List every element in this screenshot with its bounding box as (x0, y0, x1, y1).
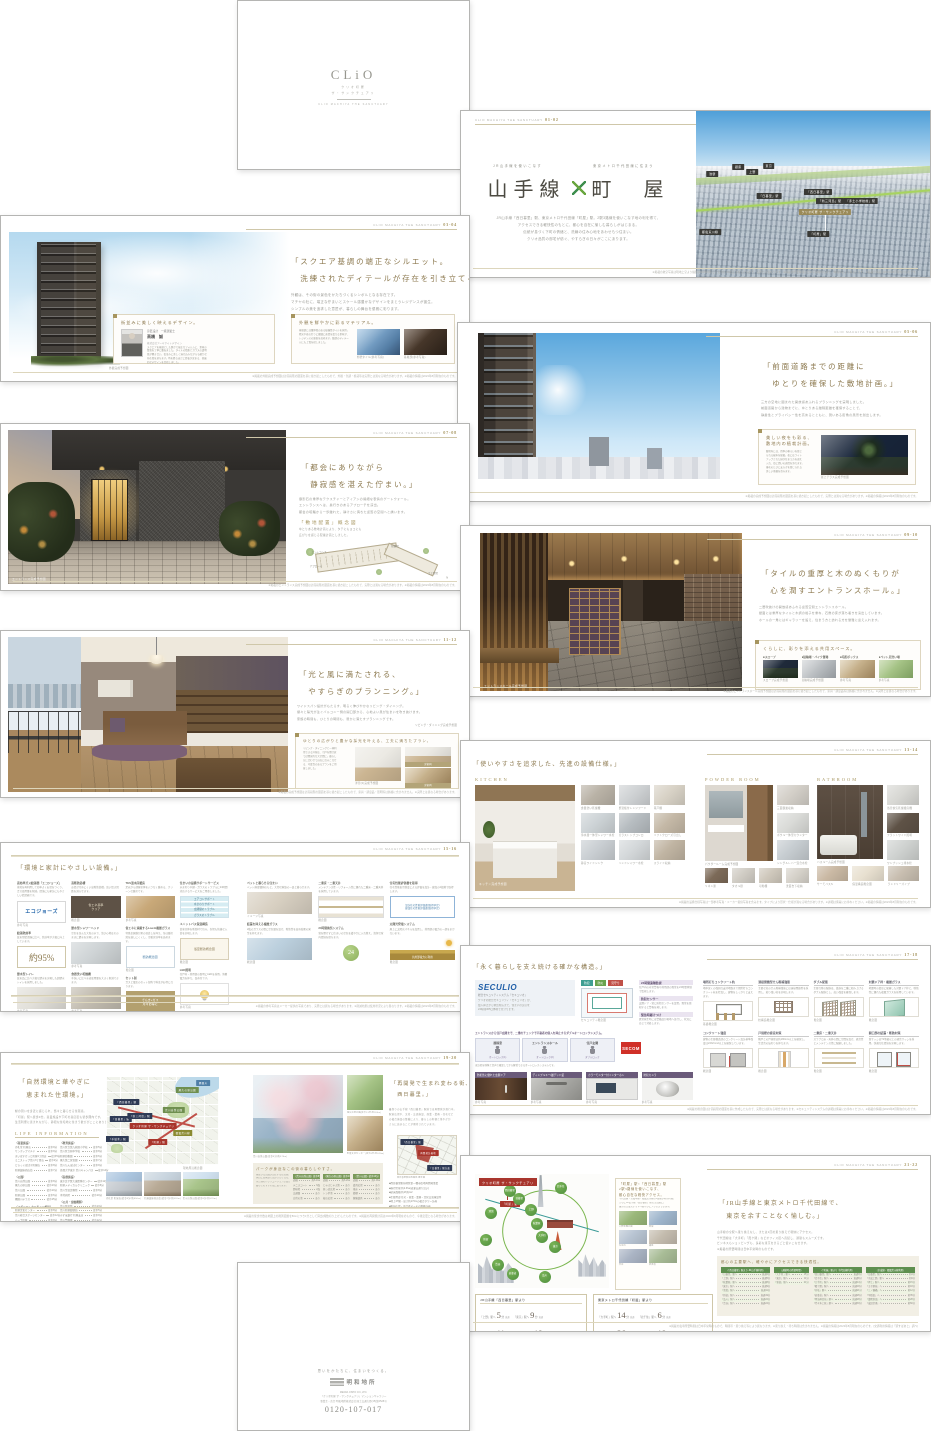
leader (789, 1278, 802, 1279)
base-caption: 基壇部(参考写真) (404, 355, 447, 359)
feature-visual: 浴室断熱概念図 (180, 938, 229, 960)
station-badge: 日暮里 (513, 1193, 525, 1205)
group-rows: 東京女子医大東医療センター徒歩11分町屋メディカルクリニック徒歩6分荒川生協診療… (60, 1180, 102, 1199)
security-column: 防犯センサー 玄関ドア・窓に防犯センサーを設置。異常を感知すると警報を発します。 (639, 996, 693, 1010)
station-badge: 池袋 (485, 1207, 497, 1219)
license-line: 事業主・売主:明和地所株式会社 国土交通大臣(15)第2528号 (238, 1400, 469, 1405)
diagram-caption: 概念図 (869, 1018, 919, 1022)
header-brand-text: CLIO MACHIYA THE SANCTUARY (475, 118, 543, 122)
timetable-3: 〈「町屋」駅より 千代田線利用〉 「西日暮里」駅へ直通3分「北千住」駅へ直通6分… (813, 1267, 862, 1307)
granite-wall (139, 461, 225, 544)
plan-text: リビング・ダイニングと一体利用できる洋室は、引戸を開け放てば開放的な大空間に。暮… (303, 747, 351, 788)
structure-diagram (758, 1048, 808, 1068)
structure-item-title: 戸境壁の遮音対策 (758, 1031, 808, 1037)
feature-title: 24時間換気システム (318, 926, 383, 930)
feature-title: ペットと暮らせる住まい (247, 881, 312, 885)
structure-item: 対震ドア枠・複層ガラス 地震時の変形に配慮した対震ドア枠と、断熱性に優れた複層ガ… (869, 980, 919, 1026)
page-number: 17-18 (904, 952, 918, 957)
aerial-sky (696, 111, 931, 166)
equipment-thumb: 食器洗い乾燥機 (581, 785, 615, 810)
eco-spread: CLIO MACHIYA THE SANCTUARY15-16 「環境と家計にや… (0, 842, 470, 1012)
company-name: 明和地所 (346, 1378, 376, 1386)
info-row: 木村病院徒歩10分 (60, 1194, 102, 1199)
cover-subtitle-2: ザ・サンクチュアリ (238, 91, 469, 97)
thumb-photo (581, 813, 615, 833)
equipment-thumb: フラットワイド照明 (887, 813, 919, 838)
aerial-photo: 銀座東京上野池袋「日暮里」駅「西日暮里」駅「新三河島」駅「赤土小学校前」駅クリオ… (696, 111, 931, 277)
security-tag: 防災 (595, 980, 607, 986)
step-subtitle: オートロック(2) (525, 1055, 564, 1059)
entrance-paragraph: 御影石の重厚なテクスチャーとアイアンの繊細な表情のゲートウォール。エントランスへ… (299, 496, 411, 515)
info-group: 〈商業施設〉 赤札堂 町屋店徒歩9分サンポップマチヤ徒歩9分まいばすけっと町屋1… (15, 1141, 57, 1173)
project-badge: クリオ町屋 ザ・サンクチュアリ (479, 1178, 537, 1186)
midbox-line: 東京の主要スポットへ軽やかにアクセスできます。 (619, 1206, 677, 1210)
leader (739, 1282, 761, 1283)
thumb-caption: 保温構造概念図 (852, 882, 883, 886)
structure-item-title: 場所打ちコンクリート杭 (703, 980, 753, 986)
entrance-spread: エントランス完成予想図 CLIO MACHIYA THE SANCTUARY07… (0, 423, 470, 591)
access-mid-box: 「町屋」駅×「西日暮里」駅 2駅3路線を使いこなす、 都心自在な軽快アクセス。 … (615, 1178, 681, 1290)
architect-org: 株式会社アーキサイトデザイン (147, 341, 207, 345)
access-time: 「東京」駅へ9分直通 (514, 1310, 544, 1320)
leader (886, 1278, 908, 1279)
security-items: 防犯性に優れた玄関ドア 参考写真 ディンプルキー/鎌デッド錠 参考写真 カラーモ… (475, 1072, 693, 1104)
headline-line2: 西日暮里。」 (391, 1090, 470, 1101)
thumb-caption: フラットワイド照明 (887, 833, 919, 837)
feature-text: お湯が冷めにくい高断熱浴槽。追い焚き回数を減らせます。 (71, 886, 120, 894)
page-header: CLIO MACHIYA THE SANCTUARY05-06 (706, 329, 918, 337)
title-yamanote: 山手線 (488, 173, 566, 202)
feature-caption: 概念図 (318, 918, 383, 922)
leader (883, 1286, 906, 1287)
paragraph-line: 家族の時間も、ひとりの時間も、豊かに満たすプランニングです。 (297, 716, 422, 722)
entrance-photo: エントランス完成予想図 (8, 430, 286, 584)
equipment-thumb: スライド収納 (654, 840, 685, 865)
column-title: 防犯センサー (639, 996, 693, 1001)
table-rows: 「大手町」駅へ15分「東京」駅へ11分「新宿」駅へ21分 (774, 1273, 808, 1286)
station-badge: 東京 (549, 1241, 561, 1253)
map-label-chip: 隅田川 (196, 1080, 210, 1086)
eco-feature: 節水型シャワーヘッド 空気を含んだ大粒の水で、浴び心地はそのままに節水を実現しま… (71, 926, 120, 967)
planting-left (8, 482, 75, 562)
page-header: CLIO MACHIYA THE SANCTUARY07-08 (246, 430, 457, 438)
structure-item-text: 主要な柱のせん断補強筋には溶接閉鎖型を採用し、粘り強い柱を実現します。 (758, 987, 808, 995)
access-time: 「表参道」駅へ26分直通 (598, 1328, 634, 1333)
station: 「新宿」駅へ (774, 1281, 788, 1285)
feature-value: 約95% (29, 951, 55, 964)
bathroom-label: BATHROOM (817, 777, 858, 782)
thumb-photo (786, 868, 809, 883)
diagram-caption: 概念図 (814, 1018, 864, 1022)
structure-item-text: 地中深くの強固な支持地盤まで場所打ちコンクリート杭を打設し、建物をしっかりと支え… (703, 987, 753, 999)
place-distance: 徒歩9分 (48, 1219, 57, 1222)
info-row: 町屋銀座商店街徒歩7分 (15, 1169, 57, 1174)
feature-value: 設計住宅性能評価書(取得予定) 建設住宅性能評価書(取得予定) (405, 904, 439, 912)
thumb-photo (581, 785, 615, 805)
plan-label: N (446, 576, 448, 579)
header-brand-text: CLIO MACHIYA THE SANCTUARY (373, 431, 441, 435)
city-photo (649, 1249, 677, 1263)
wall-shelves (176, 690, 288, 733)
bottom-rule (11, 995, 459, 997)
structure-item-text: 隣戸との戸境壁は約180mm以上を確保し、生活音の伝わりを抑えます。 (758, 1038, 808, 1046)
table-rows: 「西日暮里」駅へ直通3分「北千住」駅へ直通6分「大手町」駅へ直通14分「霞ケ関」… (813, 1273, 862, 1307)
group-title: 〈教育施設〉 (60, 1141, 102, 1145)
siteplan-note: ゆとりある敷地計画により、タテにもヨコにも広がりを感じる配棟計画としました。 (299, 527, 362, 538)
feature-text: 窓を開けずに住まいの空気を緩やかに入れ替え、清潔な室内環境を保ちます。 (318, 932, 383, 940)
leader (883, 1299, 906, 1300)
access-box-title: 東京メトロ千代田線「町屋」駅より (598, 1298, 708, 1304)
feature-title: ユニットバス保温構造 (180, 922, 229, 926)
plan-green-3 (423, 548, 429, 554)
concept-spread: CLIO MACHIYA THE SANCTUARY01-02 JR山手線を使い… (460, 110, 931, 278)
security-tags: 防犯防災見守り (581, 980, 633, 986)
leader (42, 1165, 47, 1166)
security-item-caption: 参考写真 (531, 1100, 583, 1104)
structure-item-text: 地震時の変形に配慮した対震ドア枠と、断熱性に優れた複層ガラスを採用しています。 (869, 987, 919, 995)
planting-right (219, 501, 280, 556)
feature-caption: 概念図 (126, 968, 175, 972)
thumb-caption: 三面鏡裏収納 (777, 806, 809, 810)
leader (74, 1220, 90, 1221)
page-header: CLIO MACHIYA THE SANCTUARY17-18 (707, 952, 918, 960)
security-column: 24時間遠隔監視 住戸内の非常警報や共用部の異常を24時間体制で監視します。 (639, 980, 693, 994)
headline-line1: 「都会にありながら (301, 460, 418, 477)
equipment-title: 「使いやすさを追求した、先進の設備仕様。」 (473, 759, 621, 772)
mini-map-caption: 西日暮里駅前再開発 概念図 (397, 1176, 425, 1179)
leader (48, 1156, 50, 1157)
headline-line1: 「タイルの重厚と木のぬくもりが (761, 566, 906, 583)
station-badge: 北千住 (555, 1182, 567, 1194)
city-photo-wrap: 丸の内 (619, 1230, 647, 1247)
leader (830, 1286, 851, 1287)
leader (304, 1198, 314, 1199)
eco-feature: 住宅性能評価書を取得 住宅性能表示制度による評価を設計・建設の2段階で取得します… (390, 881, 455, 918)
flow-steps: 風除室 オートロック(1) エントランスホール オートロック(2) 住戸玄関 ダ… (475, 1038, 615, 1062)
security-item-caption: 参考写真 (586, 1100, 638, 1104)
item-photo (879, 660, 914, 678)
building-corner (478, 333, 536, 472)
area-photo (183, 1172, 219, 1196)
item-title: ■宅配ボックス (840, 655, 875, 659)
feature-title: 住まいの設備サポートサービス (180, 881, 229, 885)
paragraph-line: 燦々と陽光が注ぐバルコニー側の開口部から、心地よい風が住まいを吹き抜けます。 (297, 709, 422, 715)
info-row: 首都大学東京 荒川キャンパス徒歩14分 (60, 1169, 102, 1174)
paragraph-line: クリオ品質の邸宅が紡ぐ、やすらぎの日々がここにあります。 (461, 236, 696, 243)
eco-feature: 結露を抑える複層ガラス 2枚のガラスの間に空気層を設け、断熱性を高め結露の発生を… (247, 922, 312, 963)
eco-feature: 太陽光発電システム 屋上に太陽光パネルを設置し、共用部の電力の一部をまかないます… (390, 922, 455, 963)
equipment-thumb: 静音ワイドシンク (581, 840, 615, 865)
leader (359, 1189, 373, 1190)
leader (31, 1199, 45, 1200)
security-column: 緊急時駆けつけ 異常発生時には警備員が現地へ急行し、状況に応じて対処します。 (639, 1012, 693, 1026)
feature-caption: 概念図 (247, 960, 312, 964)
common-space-item: ■スロープ スロープ完成予想図 (763, 655, 798, 682)
info-row: ムーブ町屋徒歩9分 (15, 1219, 57, 1222)
material-photo-2-wrap: 基壇部(参考写真) (404, 329, 447, 359)
minutes: 5 (497, 1310, 501, 1320)
feature-caption: 参考写真 (71, 1009, 120, 1012)
park-text-line: 暮らしのすぐそばにあります。 (256, 1185, 290, 1189)
info-group: 〈医療施設〉 東京女子医大東医療センター徒歩11分町屋メディカルクリニック徒歩6… (60, 1175, 102, 1198)
direct-note: 直通 (505, 1315, 509, 1319)
powder-photo (705, 785, 773, 861)
autolock-flow: エントランスから住戸玄関まで、二重のチェックで不審者の侵入を抑止するダブルオート… (475, 1032, 615, 1067)
paragraph-line: ホールの一角にはギャラリーを設え、住まう方と訪れる方を優雅に迎え入れます。 (759, 617, 884, 623)
page-number: 19-20 (443, 1055, 457, 1060)
paragraph-line: シンプルの美を追求した意匠が、暮らしの舞台を優雅に彩ります。 (291, 306, 435, 313)
entrance-headline: 「都会にありながら 静寂感を湛えた佇まい。」 (301, 460, 418, 493)
feature-visual (247, 892, 312, 914)
leader (883, 1274, 907, 1275)
city-photo-wrap: 上野恩賜公園 (619, 1211, 647, 1228)
thumb-photo (654, 840, 685, 860)
park-table-rows: 面積約6.1haテニスコート6面野球場2面交通園あり白鳥の池あり (293, 1179, 320, 1201)
access-time: 「大手町」駅へ14分直通 (598, 1310, 634, 1320)
park-table-rows: 面積約1.9ha遊具広場あり噴水あり藤棚あり健康遊具あり (353, 1179, 380, 1201)
headline-line1: 「再開発で生まれ変わる街、 (391, 1079, 470, 1090)
paragraph-line: アクセスできる軽快性のもとに、都心を自在に愉しむ暮らしがはじまる。 (461, 222, 696, 229)
area-photo (106, 1172, 142, 1196)
place-name: 荒川警察署 (60, 1219, 73, 1222)
room3-photo (405, 768, 451, 783)
leader (302, 1189, 315, 1190)
thumb-photo (759, 868, 782, 883)
time: 直通24分 (761, 1302, 770, 1306)
security-item: ディンプルキー/鎌デッド錠 参考写真 (531, 1072, 583, 1104)
place-label-chip: 東京 (763, 163, 775, 169)
time: 21分 (804, 1281, 809, 1285)
eco-feature: 二重床・二重天井 メンテナンス性・リフォーム性に優れた二重床・二重天井を採用して… (318, 881, 383, 922)
leader (32, 1185, 46, 1186)
step-title: 住戸玄関 (573, 1041, 612, 1045)
feature-caption: 参考写真 (17, 1009, 66, 1012)
footer-disclaimer: ※掲載の外観完成予想図は計画段階の図面を基に描き起こしたもので、外観・色調・植栽… (13, 372, 457, 379)
security-diagram: 防犯防災見守り セキュリティ概念図 (581, 980, 633, 1022)
headline-line1: 「JR山手線と東京メトロ千代田線で、 (719, 1198, 843, 1211)
structure-item: 開口部の結露・断熱対策 窓サッシはT2等級以上の遮音サッシを採用。快適な住環境を… (869, 1031, 919, 1073)
timetable-1: 〈「西日暮里」駅より JR山手線利用〉 「日暮里」駅へ直通2分「上野」駅へ直通5… (721, 1267, 770, 1307)
location-spread: CLIO MACHIYA THE SANCTUARY19-20 「自然環境と華や… (0, 1052, 470, 1222)
leader (94, 1181, 96, 1182)
diagram-caption: 概念図 (814, 1069, 864, 1073)
equipment-thumb: ソフトクローズ引出し (654, 813, 685, 838)
equipment-thumb: サーモバスS (817, 866, 848, 886)
structure-item: コンクリート強度 建物の主要構造部のコンクリート設計基準強度は24N/mm2以上… (703, 1031, 753, 1073)
place-label-chip: 「新三河島」駅 (816, 198, 844, 204)
common-space-items: ■スロープ スロープ完成予想図 ■駐輪場・バイク置場 駐輪場完成予想図 ■宅配ボ… (763, 655, 913, 682)
phone-number: 0120-107-017 (238, 1405, 469, 1414)
eco-title: 「環境と家計にやさしい設備。」 (17, 863, 122, 876)
material-photo-1-wrap: 外壁タイル(参考写真) (357, 329, 400, 359)
page-header: CLIO MACHIYA THE SANCTUARY13-14 (707, 747, 918, 755)
park-row: 健康遊具あり (353, 1197, 380, 1201)
architect-comment: スクエアを基調とした静かで端正なフォルムに、素材の質感を丁寧に重ねました。タイル… (147, 346, 207, 365)
greenery-line: 美しい景観を育みます。 (766, 470, 816, 474)
leader (32, 1181, 47, 1182)
security-item-photo (475, 1078, 527, 1100)
flow-step: 風除室 オートロック(1) (475, 1038, 520, 1062)
living-headline: 「光と風に満たされる、 やすらぎのプランニング。」 (299, 667, 425, 700)
park-table-rows: 面積約6.2haじゃぶじゃぶ池あり原っぱ広場ありトンボ池あり桜の広場あり (323, 1179, 350, 1201)
kitchen-photo (475, 785, 575, 891)
station-badge: 上野 (525, 1204, 537, 1216)
feature-value: 共用部電力に利用 (390, 955, 455, 959)
group-title: 〈公園〉 (15, 1175, 57, 1179)
group-title: 〈公共・金融機関〉 (60, 1200, 102, 1204)
redevelopment-paragraph: 最寄りの山手線「西日暮里」駅前では再開発が進行中。駅前広場や、文化・交流施設、商… (389, 1107, 461, 1127)
step-subtitle: ダブルロック (573, 1055, 612, 1059)
seculio-block: SECULIO 総合セキュリティシステム「セキュリオ」 クリオの総合セキュリティ… (475, 980, 575, 1016)
time-row: 「代々木上原」駅へ直通33分 (813, 1302, 862, 1306)
step-title: エントランスホール (525, 1041, 564, 1045)
title-machiya: 町 屋 (592, 173, 670, 202)
place-label-chip: 「日暮里」駅 (756, 193, 781, 199)
bath-bottom-thumbs: サーモバスS保温構造概念図ランドリーパイプ (817, 866, 919, 886)
park-table-3: 〈荒川公園〉徒歩10分 面積約1.9ha遊具広場あり噴水あり藤棚あり健康遊具あり (353, 1174, 380, 1202)
midbox-text: 千代田線・京成本線・都電荒川線の3路線が利用可能。さらにJR山手線「西日暮里」駅… (619, 1198, 677, 1209)
base-photo (404, 329, 447, 355)
thumb-caption: 吊戸棚 (654, 806, 685, 810)
material-text: 基壇部には重厚感のある磁器質タイルを採用。陽光や夜の灯りに繊細に表情を変える素材… (299, 329, 353, 359)
page-number: 07-08 (443, 430, 457, 435)
feature-text: 住戸内・共用部の照明にLEDを採用。消費電力を抑え、長寿命です。 (180, 973, 229, 981)
leader (29, 1220, 47, 1221)
item-caption: 参考写真 (879, 678, 914, 682)
access-time: 「池袋」駅へ11分直通 (480, 1328, 513, 1333)
area-photo-wrap: 町屋銀座商店街(徒歩7分/約520m) (144, 1172, 180, 1200)
area-photo-caption: 赤札堂 町屋店(徒歩9分/約650m) (106, 1196, 142, 1200)
bathroom-photo (817, 785, 883, 859)
room2-caption: 洋室(2) (405, 762, 451, 767)
headline-line2: 静寂感を湛えた佇まい。」 (301, 477, 418, 494)
powder-side-thumbs: 三面鏡裏収納ボウル一体型カウンターシングルレバー混合水栓 (777, 785, 809, 865)
structure-diagram (814, 997, 864, 1017)
architect-box: 街並みに美しく映えるデザイン。 意匠設計 一級建築士 高橋 誠 株式会社アーキサ… (113, 314, 275, 364)
feature-visual: 24 (318, 942, 383, 964)
leader (95, 1170, 97, 1171)
leader (302, 1193, 314, 1194)
item-photo (802, 660, 837, 678)
greenery-box: 美しい夜をも彩る、 敷地内の植栽計画。 敷地内には、四季の移ろいを感じられる樹木… (758, 429, 916, 485)
structure-item-title: ダブル配筋 (814, 980, 864, 986)
area-photo-wrap: 荒川自然公園(徒歩8分/約570m) (183, 1172, 219, 1200)
city-photo-wrap: 新宿 (649, 1211, 677, 1228)
security-item-caption: 参考写真 (475, 1100, 527, 1104)
leader (27, 1195, 47, 1196)
info-column-2: 〈教育施設〉 荒川区立第九峡田小学校徒歩5分荒川区立原中学校徒歩8分町屋幼稚園徒… (60, 1139, 102, 1222)
flow-title: エントランスから住戸玄関まで、二重のチェックで不審者の侵入を抑止するダブルオート… (475, 1032, 615, 1036)
plan-box-content: リビング・ダイニングと一体利用できる洋室は、引戸を開け放てば開放的な大空間に。暮… (303, 747, 451, 788)
city-photo-wrap: 表参道 (649, 1249, 677, 1266)
headline-line2: やすらぎのプランニング。」 (299, 684, 425, 701)
item-caption: 参考写真 (840, 678, 875, 682)
group-rows: 荒川自然公園徒歩8分尾久の原公園徒歩13分荒川公園徒歩10分町屋公園徒歩6分隅田… (15, 1180, 57, 1203)
thumb-caption: 浴室換気乾燥暖房機 (887, 806, 919, 810)
leader (364, 1185, 374, 1186)
thumb-caption: 洗面台下収納 (786, 884, 809, 888)
rooftop-caption: 屋上テラス完成予想図 (821, 475, 908, 479)
bath-side-thumbs: 浴室換気乾燥暖房機フラットワイド照明ワンプッシュ排水栓 (887, 785, 919, 865)
park-photo-small (347, 1075, 383, 1110)
security-tag: 見守り (608, 980, 622, 986)
park-patch-3 (111, 1144, 123, 1153)
feature-caption: 参考写真 (17, 923, 66, 927)
leader (883, 1290, 906, 1291)
structure-item-title: コンクリート強度 (703, 1031, 753, 1037)
footer-disclaimer: ※掲載の概念図は計画段階の図面を基に作成したもので、実際とは異なる場合があります… (473, 1105, 918, 1112)
paragraph-line: 壁面には重厚なタイルと木調の格子を重ね、石敷の床が落ち着きを演出しています。 (759, 610, 884, 616)
feature-text: 水まわりや鍵・ガラスのトラブルに24時間対応するサービスをご用意しました。 (180, 886, 229, 894)
leader (341, 1185, 343, 1186)
tile-caption: 外壁タイル(参考写真) (357, 355, 400, 359)
structure-item-title: 開口部の結露・断熱対策 (869, 1031, 919, 1037)
back-contact-block: 思いをかたちに、住まいをつくる。 明和地所 MEIWA JISHO CO.,LT… (238, 1368, 469, 1415)
thumb-caption: 可動棚 (759, 884, 782, 888)
leader (736, 1278, 760, 1279)
equipment-spread: CLIO MACHIYA THE SANCTUARY13-14 「使いやすさを追… (460, 740, 931, 908)
life-info-label: LIFE INFORMATION (15, 1131, 99, 1138)
leader (45, 1160, 47, 1161)
item-photo (763, 660, 798, 678)
kitchen-thumbs: 食器洗い乾燥機整流板付レンジフード吊戸棚浄水器一体型シャワー水栓ガラストップコン… (581, 785, 685, 865)
timetable-tables: 〈「西日暮里」駅より JR山手線利用〉 「日暮里」駅へ直通2分「上野」駅へ直通5… (721, 1267, 915, 1307)
eco-feature: 省エネに貢献するLow-E複層ガラス 特殊金属膜が夏の日差しを抑え、冬は暖房熱を… (126, 926, 175, 972)
city-photo-wrap: 渋谷 (619, 1249, 647, 1266)
security-item-photo (642, 1078, 694, 1100)
architect-photo (121, 329, 143, 357)
place-distance: 徒歩15分 (47, 1198, 57, 1203)
structure-title: 「永く暮らしを支え続ける確かな構造。」 (473, 962, 607, 975)
leader (329, 1180, 340, 1181)
thumb-photo (888, 866, 919, 881)
info-row: 隅田川テラス徒歩15分 (15, 1198, 57, 1203)
timetable-box: 都心の主要駅へ、軽やかにアクセスできる快適性。 〈「西日暮里」駅より JR山手線… (717, 1256, 919, 1316)
living-photo (8, 637, 288, 792)
header-brand-text: CLIO MACHIYA THE SANCTUARY (834, 748, 902, 752)
feature-text: 手洗いに比べ水道使用量を大きく削減できます。 (71, 977, 120, 985)
park-attr: 健康遊具 (353, 1197, 363, 1201)
time: 直通33分 (852, 1302, 861, 1306)
direct-note: 直通 (539, 1315, 543, 1319)
leader (359, 1193, 373, 1194)
rooftop-night-photo (821, 435, 908, 475)
access-time: 「新宿」駅へ19分直通 (517, 1328, 551, 1333)
bathroom-caption: バスルーム完成予想図 (817, 860, 845, 864)
place-label-chip: 「赤土小学校前」駅 (843, 198, 878, 204)
unit: 分 (662, 1315, 665, 1319)
place-label-chip: 「町屋」駅 (807, 231, 828, 237)
thumb-photo (777, 813, 809, 833)
cover-logo-block: CLiO クリオ町屋 ザ・サンクチュアリ CLIO MACHIYA THE SA… (238, 67, 469, 106)
development-list: ■西日暮里駅前地区第一種市街地再開発事業■施行区域:約2.3ha(道灌山通り沿い… (389, 1182, 461, 1209)
eco-feature: 給湯熱効率 従来型給湯器に比べ、熱効率が大幅に向上しています。 約95% (17, 931, 66, 968)
access-time: 「霞ケ関」駅へ18分直通 (638, 1328, 674, 1333)
leader (833, 1274, 853, 1275)
person-icon (542, 1046, 547, 1054)
park-attr: 桜の広場 (323, 1197, 333, 1201)
destination: 「北千住」駅へ (638, 1315, 656, 1319)
plan-green-2 (376, 569, 382, 575)
access-paragraph: 山手線の全駅へ乗り換えなし、または1回の乗り換えで軽快にアクセス。千代田線は「大… (717, 1230, 826, 1253)
unit: 分 (501, 1315, 504, 1319)
thumb-photo (732, 868, 755, 883)
leader (359, 1180, 370, 1181)
feature-title: 住宅性能評価書を取得 (390, 881, 455, 885)
area-map: クリオ町屋 ザ・サンクチュアリ「町屋」駅「西日暮里」駅「日暮里」駅「新三河島」駅… (106, 1077, 219, 1165)
info-group: 〈公園〉 荒川自然公園徒歩8分尾久の原公園徒歩13分荒川公園徒歩10分町屋公園徒… (15, 1175, 57, 1203)
note-line: 広がりを感じる配棟計画としました。 (299, 533, 362, 539)
